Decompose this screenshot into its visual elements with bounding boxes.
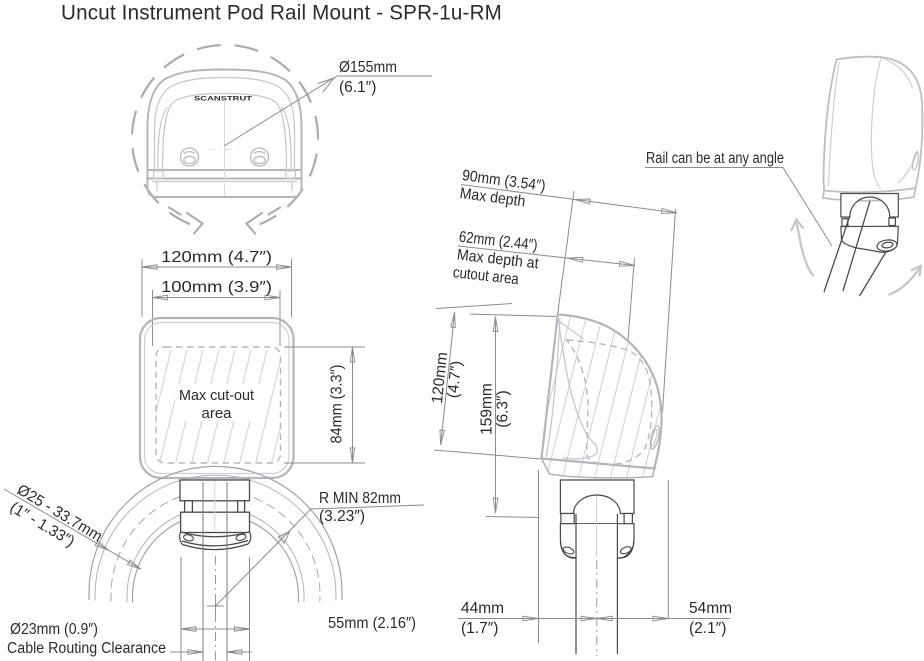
svg-text:(6.1″): (6.1″) [339,79,376,96]
svg-text:120mm (4.7″): 120mm (4.7″) [161,249,272,266]
svg-text:Ø23mm (0.9″): Ø23mm (0.9″) [10,621,98,638]
svg-text:(6.3″): (6.3″) [495,390,512,427]
svg-text:84mm (3.3″): 84mm (3.3″) [329,365,346,444]
svg-text:(2.1″): (2.1″) [689,620,726,637]
svg-text:Max cut-out: Max cut-out [179,387,255,404]
svg-text:Ø155mm: Ø155mm [339,59,397,76]
svg-text:(1.7″): (1.7″) [461,620,498,637]
svg-text:area: area [201,405,232,422]
svg-text:(4.7″): (4.7″) [445,360,466,399]
svg-text:55mm (2.16″): 55mm (2.16″) [328,615,416,632]
svg-text:Uncut Instrument Pod Rail Moun: Uncut Instrument Pod Rail Mount - SPR-1u… [61,1,502,25]
svg-text:44mm: 44mm [461,600,504,617]
svg-text:Cable Routing Clearance: Cable Routing Clearance [7,640,166,657]
svg-text:Rail can be at any angle: Rail can be at any angle [646,150,784,167]
svg-text:54mm: 54mm [689,600,732,617]
svg-text:159mm: 159mm [479,383,496,435]
svg-text:R MIN 82mm: R MIN 82mm [319,490,401,507]
svg-text:100mm (3.9″): 100mm (3.9″) [161,279,272,296]
svg-text:SCANSTRUT: SCANSTRUT [194,97,253,103]
svg-text:(3.23″): (3.23″) [319,508,365,525]
